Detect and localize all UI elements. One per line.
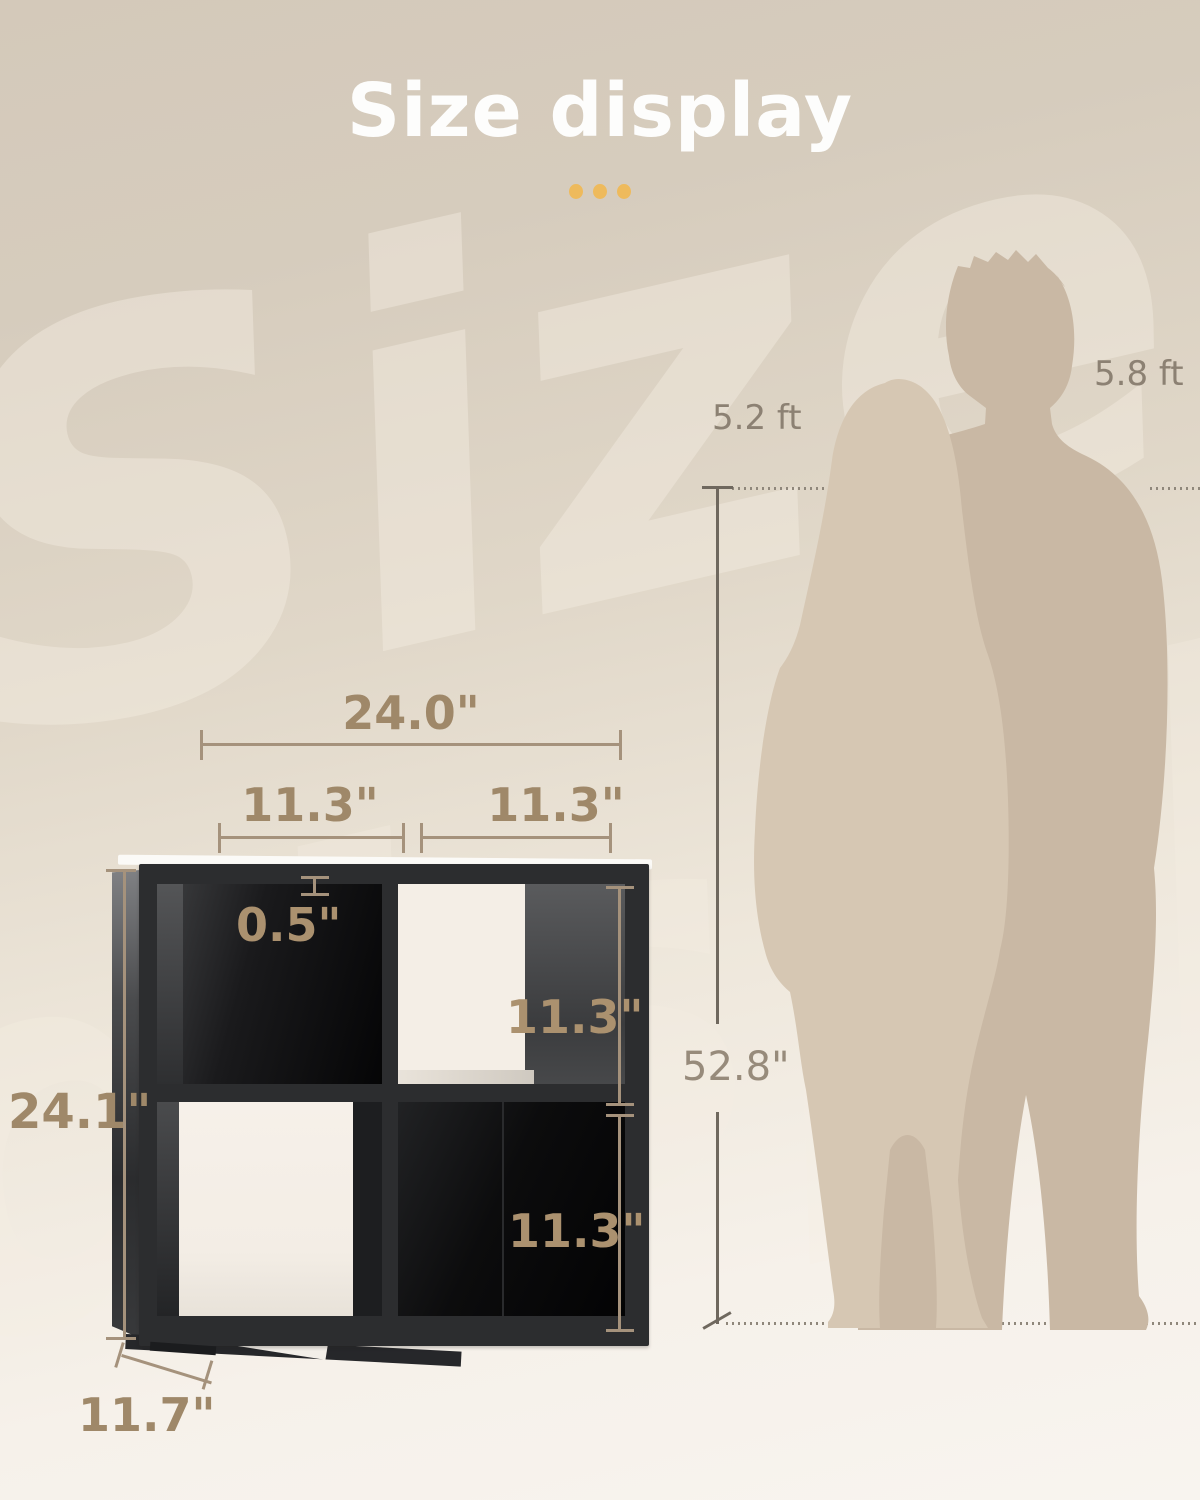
comparison-height-line-lower [716,1112,719,1324]
dim-tick [200,730,203,760]
dim-tick [301,893,329,896]
dim-top-cube-height-label: 11.3" [506,990,643,1044]
dim-tick [606,1329,634,1332]
dim-total-height-line [123,871,126,1340]
cube-floor-highlight [398,1070,534,1084]
accent-dot [617,184,631,199]
shelf-underside-highlight [211,1322,329,1360]
page-title: Size display [0,68,1200,154]
shelf-top-highlight [118,855,652,870]
comparison-height-line-upper [716,488,719,1024]
shelf-front-frame [139,864,649,1346]
cube-inner-side [157,884,183,1084]
dim-tick [402,823,405,853]
dim-left-cube-width-line [218,836,405,839]
dim-tick [606,1114,634,1117]
cube-divider-shadow [353,1102,382,1316]
size-display-infographic: Size display Size display [0,0,1200,1500]
shelf-bottom-edge [125,1334,461,1367]
dim-total-height-label: 24.1" [8,1084,151,1140]
dim-top-cube-height-line [618,888,621,1106]
cube-top-right [398,884,625,1084]
accent-dot [569,184,583,199]
dim-shelf-thickness-label: 0.5" [236,898,341,952]
dim-tick [619,730,622,760]
dim-bottom-cube-height-line [618,1116,621,1332]
dim-tick [202,1360,214,1390]
dim-tick [606,886,634,889]
dim-depth-label: 11.7" [78,1388,215,1442]
cube-back-edge [502,1102,504,1316]
dim-depth-line [121,1354,212,1384]
dim-total-width-label: 24.0" [311,686,511,740]
dim-tick [609,823,612,853]
accent-dot [593,184,607,199]
dim-tick [106,869,136,872]
shelf-foot [150,1342,216,1356]
dim-comparison-height-label: 52.8" [682,1044,789,1090]
female-height-label: 5.2 ft [712,398,802,438]
male-height-label: 5.8 ft [1094,354,1184,394]
dim-tick [606,1103,634,1106]
dim-tick [218,823,221,853]
dim-right-cube-width-label: 11.3" [476,778,636,832]
dim-left-cube-width-label: 11.3" [230,778,390,832]
dim-bottom-cube-height-label: 11.3" [508,1204,645,1258]
dim-tick [106,1337,136,1340]
cube-bottom-left [157,1102,382,1316]
comparison-tick-top [702,486,733,489]
dim-tick [420,823,423,853]
dim-right-cube-width-line [420,836,612,839]
cube-inner-side [525,884,625,1084]
accent-dots [0,184,1200,199]
dim-shelf-thickness-ibeam [301,876,329,896]
dim-total-width-line [200,743,622,746]
cube-inner-side [157,1102,179,1316]
